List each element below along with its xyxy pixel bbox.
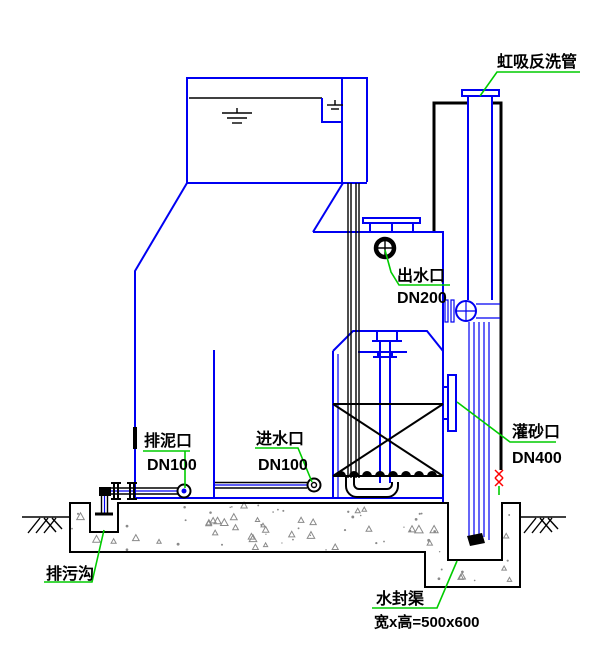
outlet-port-symbol [375, 238, 395, 258]
foundation-outline [70, 503, 520, 587]
ground-hatch-left [28, 518, 62, 533]
drain-drop-pipe [95, 494, 113, 514]
label-inlet-port: 进水口 [256, 429, 304, 448]
water-level-symbol [222, 108, 252, 123]
label-water-seal: 水封渠 [376, 589, 425, 608]
notch-water-level-symbol [327, 100, 343, 109]
siphon-pipe [468, 96, 492, 300]
engineering-drawing: 虹吸反洗管 出水口 DN200 排泥口 DN100 进水口 DN100 灌砂口 … [0, 0, 600, 646]
drain-port-symbol [178, 485, 191, 498]
siphon-valve [445, 300, 500, 322]
sand-fill-flange [443, 375, 456, 431]
label-outlet-port: 出水口 [397, 266, 445, 285]
ground-hatch-right [524, 518, 558, 533]
label-sludge-port: 排泥口 [144, 431, 192, 450]
center-pipe [380, 341, 390, 483]
overflow-notch [322, 98, 342, 122]
siphon-pipe-mask [469, 96, 491, 108]
concrete-stipple [71, 502, 512, 581]
label-outlet-size: DN200 [397, 290, 447, 307]
tank-funnel-right [313, 183, 343, 232]
label-sand-port: 灌砂口 [512, 422, 560, 441]
label-sludge-size: DN100 [147, 457, 197, 474]
label-sand-size: DN400 [512, 450, 562, 467]
label-water-seal-dim: 宽x高=500x600 [373, 613, 480, 631]
wall-pipe-stub [133, 427, 137, 449]
drop-pipe-bundle [469, 322, 489, 540]
label-sewage-ditch: 排污沟 [46, 564, 94, 583]
filter-tank [135, 183, 456, 502]
label-inlet-size: DN100 [258, 457, 308, 474]
pipe-elbow [467, 533, 485, 546]
cross-brace [333, 404, 443, 476]
annotation-labels: 虹吸反洗管 出水口 DN200 排泥口 DN100 进水口 DN100 灌砂口 … [46, 52, 577, 631]
alarm-valve-symbol [495, 470, 503, 486]
leader-siphon-backwash [480, 72, 580, 96]
inlet-port-symbol [308, 479, 321, 492]
inlet-pipe-assembly [215, 479, 321, 492]
center-pipe-flanges [358, 331, 407, 357]
top-flange-bar [363, 218, 420, 223]
label-siphon-backwash-pipe: 虹吸反洗管 [497, 52, 577, 71]
siphon-assembly [434, 90, 503, 546]
